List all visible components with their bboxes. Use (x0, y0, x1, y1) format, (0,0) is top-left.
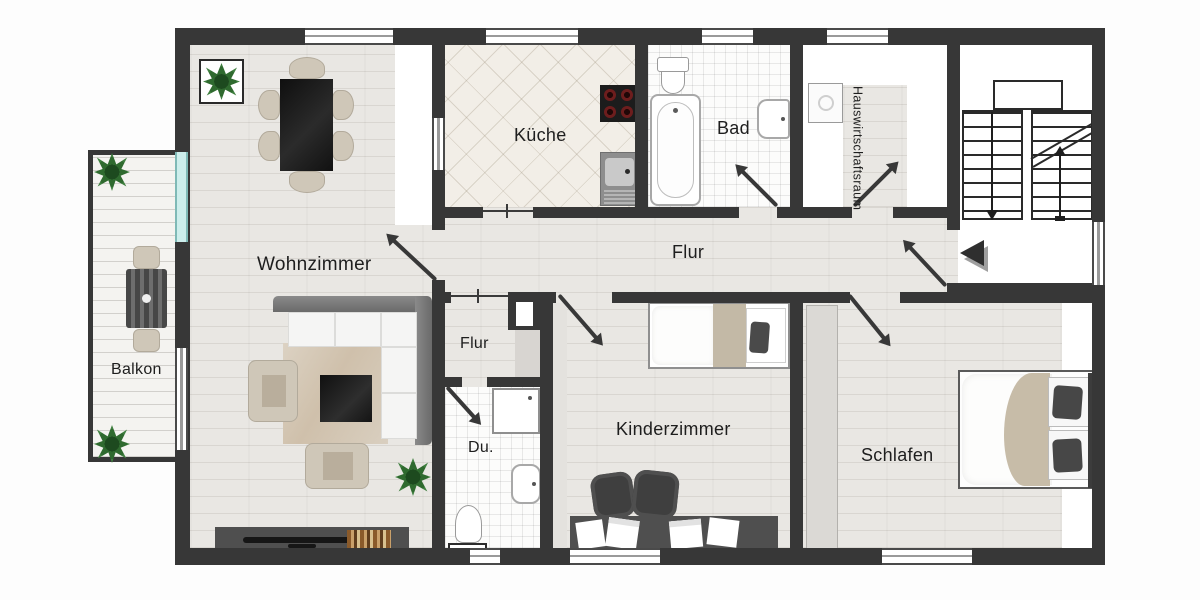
room-label-dusche: Du. (468, 440, 494, 456)
livingroom-white-margin (395, 45, 432, 225)
room-label-kueche: Küche (514, 126, 567, 144)
wall-shower-kids (540, 303, 553, 550)
door-hallway-tick (477, 289, 479, 303)
dining-chair (332, 90, 354, 120)
balcony-chair-bottom (133, 329, 160, 352)
bath-sink (757, 99, 790, 139)
sofa-cushion (335, 312, 381, 347)
desk-paper (706, 517, 739, 547)
sofa-cushion (381, 393, 417, 439)
window (570, 548, 660, 565)
kids-mattress (652, 306, 714, 365)
balcony-chair-top (133, 246, 160, 269)
kidsroom-left-margin (553, 303, 567, 550)
room-label-hauswirtschaftsraum: Hauswirtschaftsraum (851, 86, 864, 210)
sofa-cushion (381, 312, 417, 347)
room-label-schlafen: Schlafen (861, 446, 933, 464)
dining-table (280, 79, 333, 171)
door-hallway-line (450, 295, 508, 297)
dining-chair (289, 171, 325, 193)
sofa-cushion (381, 347, 417, 393)
dining-chair (332, 131, 354, 161)
entrance-arrow-icon (960, 240, 984, 266)
door-kitchen-line (483, 210, 533, 212)
sofa-back-top (273, 296, 431, 312)
wall-hall-bottom (540, 292, 556, 303)
kids-pillow (749, 321, 770, 353)
stair-landing (993, 80, 1063, 110)
wall-outer-right (1092, 28, 1105, 565)
shower-sink-dot (532, 482, 536, 486)
wall-hall-top (777, 207, 852, 218)
bath-sink-dot (781, 117, 785, 121)
balcony-table-knob (142, 294, 151, 303)
window (305, 28, 393, 45)
sofa-back-right (415, 296, 432, 445)
wall-shower-top (487, 377, 553, 387)
room-label-kinderzimmer: Kinderzimmer (616, 420, 731, 438)
stair-down-arrow (991, 112, 993, 212)
window (1092, 222, 1105, 285)
shower-drain-dot (528, 396, 532, 400)
double-bed (958, 370, 1094, 489)
duct-inset (516, 302, 533, 326)
shower-sink (511, 464, 541, 504)
dining-chair (258, 131, 280, 161)
coffee-table (320, 375, 372, 422)
sofa-cushion (288, 312, 335, 347)
room-label-bad: Bad (717, 119, 750, 137)
wall-livingroom-right (432, 280, 445, 550)
office-chair (631, 469, 681, 520)
washer-door (818, 95, 834, 111)
kitchen-sink (600, 152, 638, 206)
wall-bedroom-top (900, 292, 1105, 303)
wall-kitchen-right (635, 45, 648, 218)
wardrobe (806, 305, 838, 553)
burner (621, 106, 633, 118)
window (882, 548, 972, 565)
desk-laptop (669, 519, 703, 550)
armchair-cushion (262, 375, 286, 407)
desk-paper (575, 519, 605, 549)
stair-down-arrowhead-icon (986, 210, 998, 220)
burner (604, 106, 616, 118)
wall-hall-top (648, 207, 739, 218)
shower-toilet (455, 505, 482, 543)
balcony-wall-bottom (88, 457, 175, 462)
wall-kids-bedroom (790, 292, 803, 550)
wall-shower-top (442, 377, 462, 387)
window (702, 28, 753, 45)
room-label-balkon: Balkon (111, 362, 162, 378)
window (175, 348, 188, 450)
stair-up-arrowhead-icon (1054, 146, 1066, 156)
burner (604, 89, 616, 101)
floor-plan: Wohnzimmer Küche Bad Hauswirtschaftsraum… (0, 0, 1200, 600)
kids-blanket (713, 304, 746, 367)
stair-arrow-foot (1055, 216, 1065, 221)
stair-up-arrow (1059, 155, 1061, 220)
wall-hall-bottom (445, 292, 451, 303)
tv (243, 537, 361, 543)
desk-laptop (605, 517, 640, 550)
stair-stringer (1021, 110, 1033, 220)
window (470, 548, 500, 565)
wall-bath-right (790, 45, 803, 218)
room-label-wohnzimmer: Wohnzimmer (257, 255, 372, 274)
bathtub-faucet-dot (673, 108, 678, 113)
bed-pillow (1052, 385, 1083, 420)
window (827, 28, 888, 45)
armchair-cushion (323, 452, 353, 480)
wall-hall-top (533, 207, 637, 218)
wall-stairwell-bottom (947, 283, 1092, 292)
door-kitchen-tick (506, 204, 508, 218)
room-label-flur: Flur (672, 243, 704, 261)
interior-window (432, 118, 445, 170)
faucet-dot (625, 169, 630, 174)
room-label-flur-klein: Flur (460, 336, 489, 352)
drainboard (604, 190, 635, 204)
shower (492, 388, 540, 434)
balcony-glass-door (175, 152, 188, 242)
wall-outer-left (175, 28, 190, 565)
wall-hall-top (445, 207, 483, 218)
dining-chair (258, 90, 280, 120)
office-chair (589, 470, 637, 520)
toilet-bowl (661, 71, 685, 94)
bed-pillow (1052, 438, 1083, 472)
kids-bed (648, 302, 790, 369)
duct-strip (515, 330, 540, 378)
bathtub-basin (657, 102, 694, 198)
window (486, 28, 578, 45)
burner (621, 89, 633, 101)
wall-hall-bottom (612, 292, 790, 303)
toilet (657, 57, 689, 72)
washing-machine (808, 83, 843, 123)
stove (600, 85, 638, 122)
wall-hall-top (893, 207, 949, 218)
wall-stairwell-left (947, 28, 960, 230)
dining-chair (289, 57, 325, 79)
